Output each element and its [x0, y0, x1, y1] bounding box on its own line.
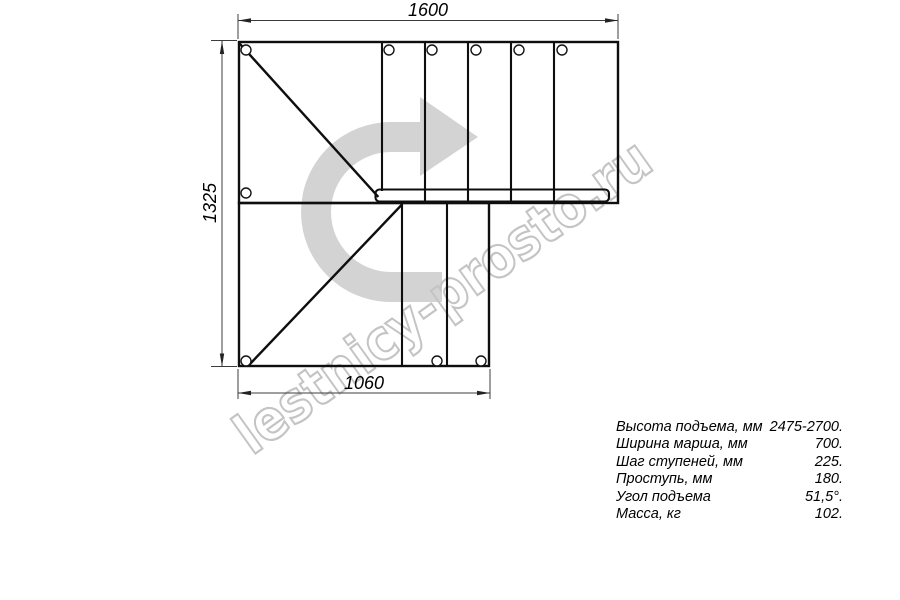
watermark-text: lestnicy-prosto.ru — [222, 126, 664, 467]
spec-value: 700. — [815, 436, 843, 453]
spec-label: Шаг ступеней, мм — [616, 454, 743, 471]
spec-label: Масса, кг — [616, 506, 681, 523]
hole — [476, 356, 486, 366]
spec-row-flight-width: Ширина марша, мм 700. — [616, 436, 843, 453]
spec-row-rise-height: Высота подъема, мм 2475-2700. — [616, 419, 843, 436]
dim-arrow-icon — [605, 18, 618, 22]
hole — [241, 356, 251, 366]
spec-label: Ширина марша, мм — [616, 436, 748, 453]
dim-arrow-icon — [220, 41, 224, 54]
hole — [514, 45, 524, 55]
spec-row-rise-angle: Угол подъема 51,5°. — [616, 489, 843, 506]
dim-bottom-label: 1060 — [344, 373, 384, 393]
hole — [432, 356, 442, 366]
spec-row-tread: Проступь, мм 180. — [616, 471, 843, 488]
dim-arrow-icon — [477, 391, 490, 395]
spec-value: 2475-2700. — [770, 419, 843, 436]
spec-value: 102. — [815, 506, 843, 523]
hole — [557, 45, 567, 55]
hole — [471, 45, 481, 55]
hole — [427, 45, 437, 55]
spec-value: 225. — [815, 454, 843, 471]
upper-diagonal-brace — [241, 45, 378, 197]
dim-arrow-icon — [238, 391, 251, 395]
spec-label: Угол подъема — [616, 489, 711, 506]
spec-row-step-pitch: Шаг ступеней, мм 225. — [616, 454, 843, 471]
dim-left-label: 1325 — [200, 182, 220, 223]
hole — [241, 45, 251, 55]
hole — [241, 188, 251, 198]
spec-label: Высота подъема, мм — [616, 419, 763, 436]
spec-row-mass: Масса, кг 102. — [616, 506, 843, 523]
spec-value: 180. — [815, 471, 843, 488]
dim-arrow-icon — [220, 354, 224, 367]
specs-table: Высота подъема, мм 2475-2700. Ширина мар… — [616, 419, 843, 523]
hole — [384, 45, 394, 55]
dim-arrow-icon — [238, 18, 251, 22]
staircase-drawing-page: lestnicy-prosto.ru — [0, 0, 900, 600]
spec-value: 51,5°. — [805, 489, 843, 506]
spec-label: Проступь, мм — [616, 471, 712, 488]
dim-top-label: 1600 — [408, 0, 448, 20]
